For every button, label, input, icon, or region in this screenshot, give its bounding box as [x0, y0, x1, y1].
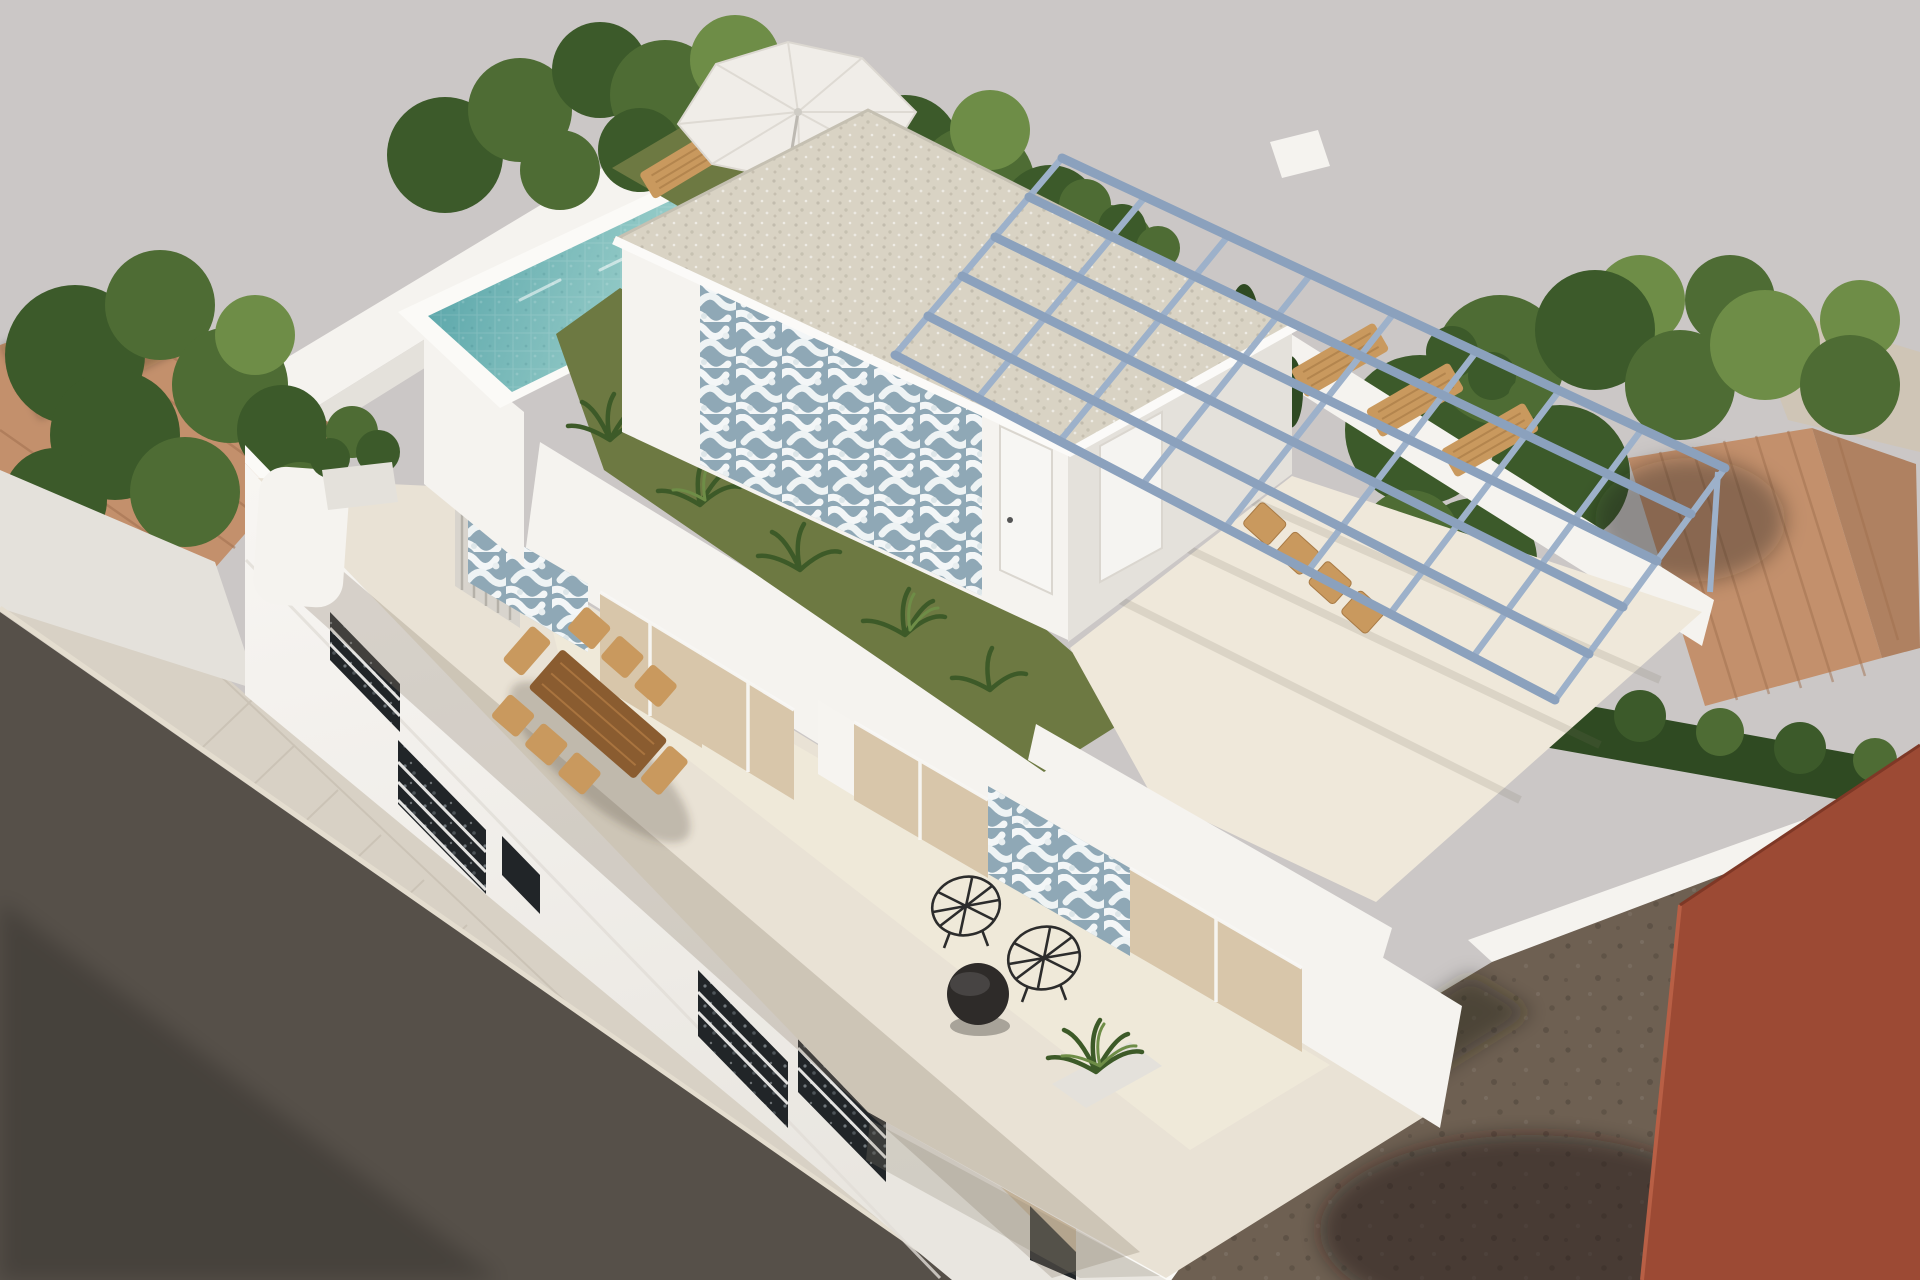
villa-scene: [0, 0, 1920, 1280]
architectural-render: [0, 0, 1920, 1280]
penthouse-door: [1000, 426, 1052, 594]
